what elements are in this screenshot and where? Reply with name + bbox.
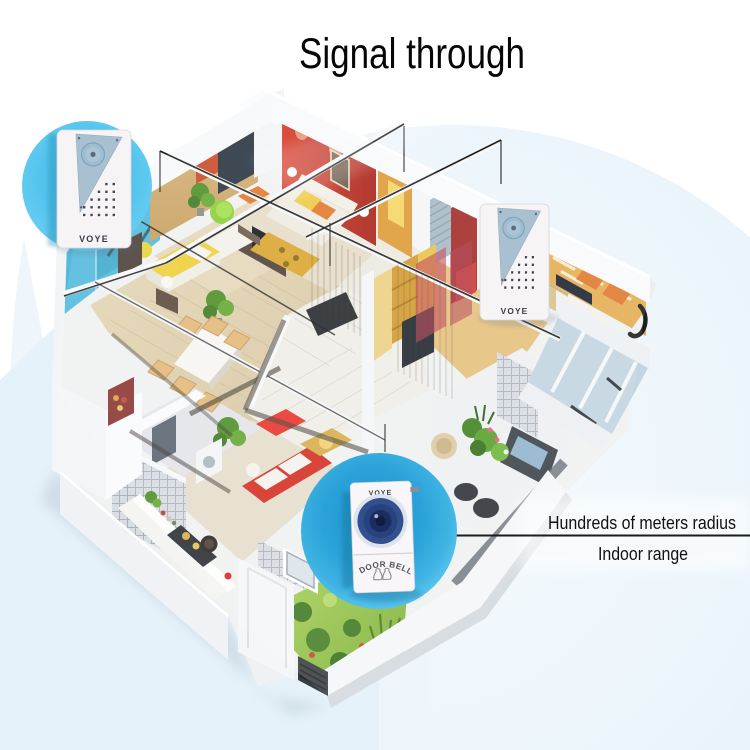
svg-text:Indoor range: Indoor range (598, 544, 688, 564)
svg-text:Hundreds of meters radius: Hundreds of meters radius (548, 513, 736, 533)
svg-text:VOYE: VOYE (501, 306, 529, 316)
svg-text:VOYE: VOYE (79, 234, 109, 244)
svg-text:Signal through: Signal through (299, 30, 525, 78)
